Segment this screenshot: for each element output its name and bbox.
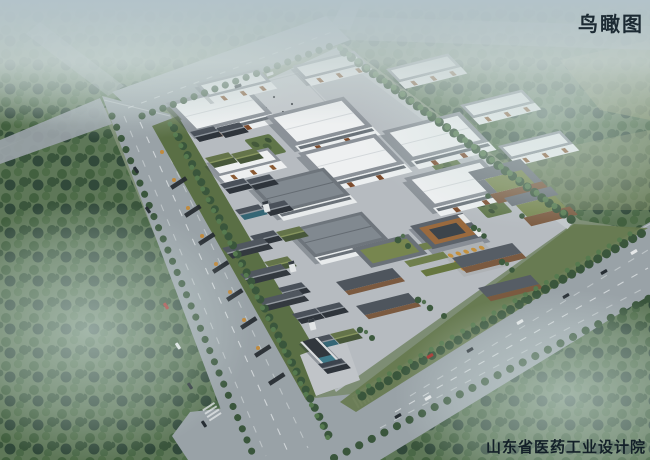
sky-band [0,0,650,125]
birdseye-scene [0,0,650,460]
aerial-rendering-canvas: 鸟瞰图 山东省医药工业设计院 [0,0,650,460]
design-institute-credit: 山东省医药工业设计院 [486,436,646,457]
view-title-label: 鸟瞰图 [578,8,644,37]
